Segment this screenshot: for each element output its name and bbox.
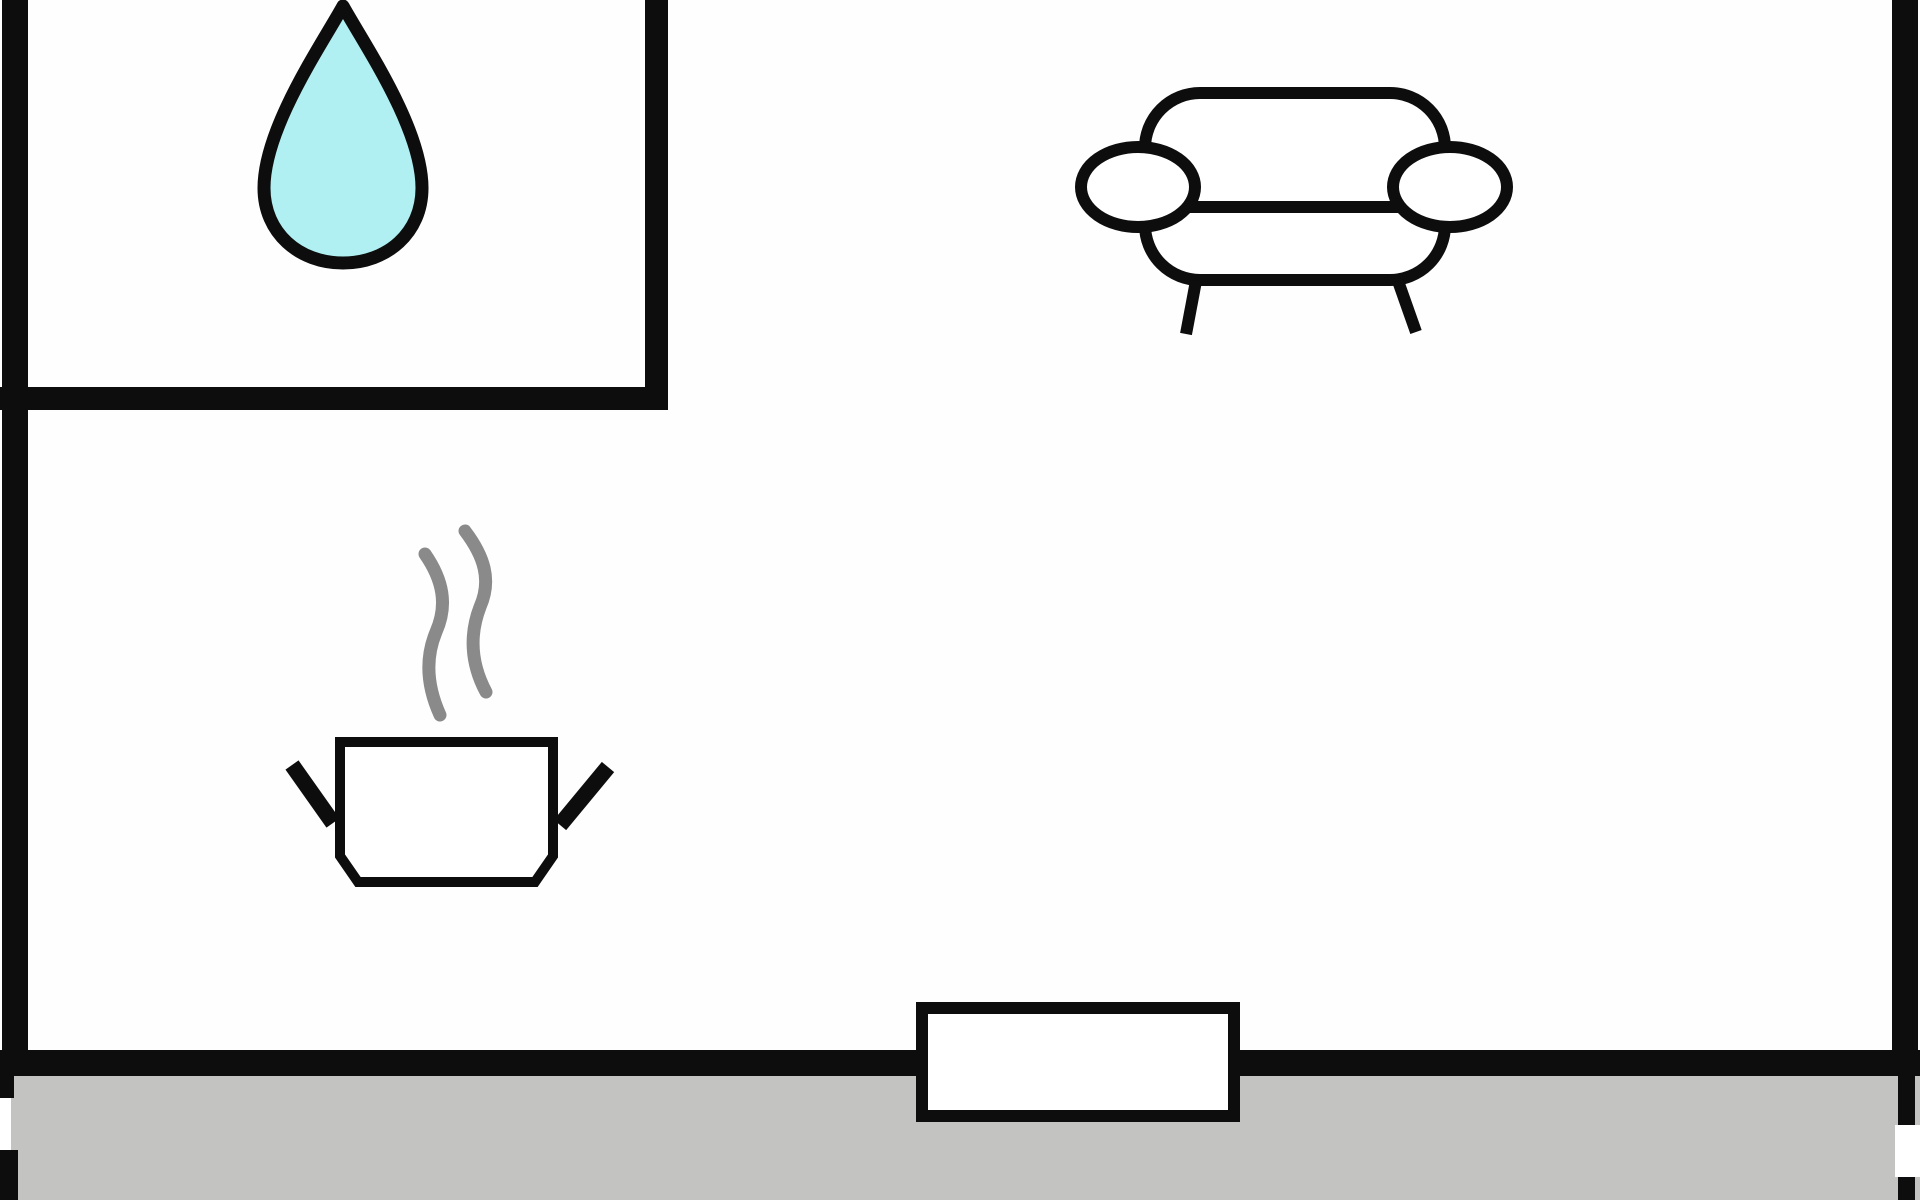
left-wall-stub-upper	[0, 1076, 14, 1098]
right-wall-stub-lower	[1898, 1177, 1915, 1200]
door-icon	[922, 1008, 1234, 1116]
sofa-armrest-left	[1081, 147, 1195, 227]
pot-body	[340, 742, 553, 882]
bathroom-wall-horizontal	[0, 387, 668, 410]
floor-plan-canvas	[0, 0, 1920, 1200]
right-wall-gap	[1895, 1125, 1920, 1177]
left-wall-stub-lower	[0, 1150, 18, 1200]
left-wall	[2, 0, 28, 1076]
floor-plan	[0, 0, 1920, 1200]
sofa-armrest-right	[1393, 147, 1507, 227]
bathroom-wall-vertical	[645, 0, 668, 410]
right-wall	[1892, 0, 1918, 1076]
right-wall-stub-upper	[1898, 1076, 1915, 1125]
left-wall-gap	[0, 1098, 11, 1150]
